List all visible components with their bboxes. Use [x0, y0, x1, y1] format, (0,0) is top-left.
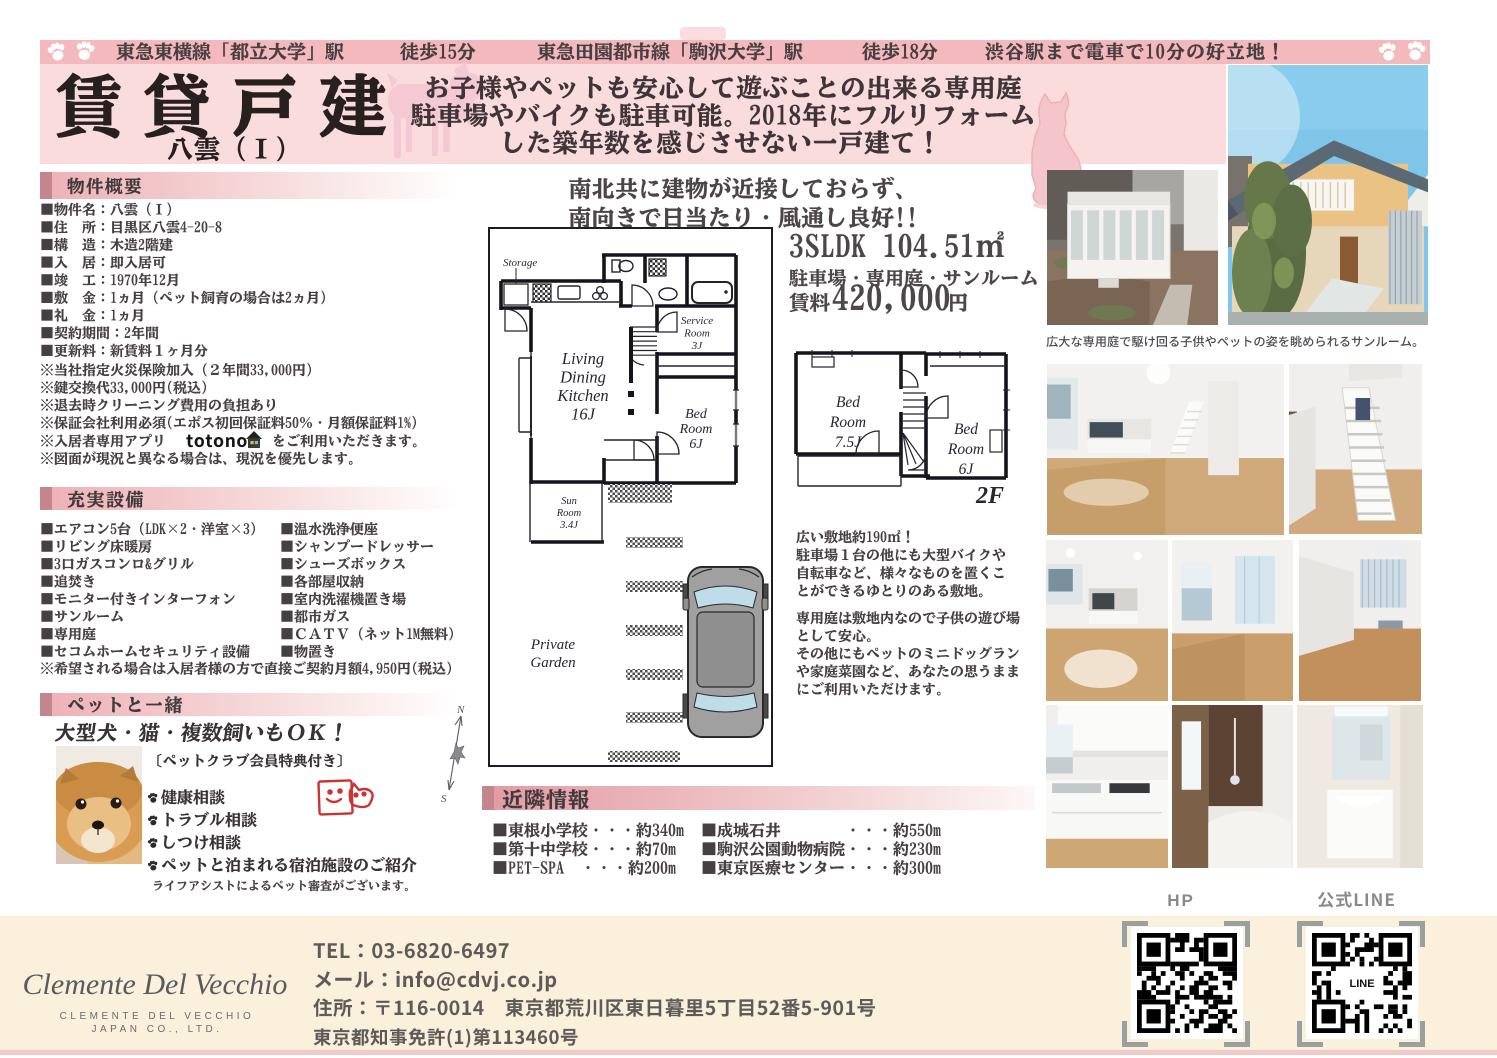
svg-text:CLEMENTE DEL VECCHIO: CLEMENTE DEL VECCHIO [60, 1011, 255, 1022]
svg-text:Clemente Del Vecchio: Clemente Del Vecchio [23, 968, 288, 1001]
svg-text:Storage: Storage [503, 257, 537, 269]
svg-text:S: S [441, 793, 447, 805]
svg-text:N: N [456, 704, 465, 716]
svg-text:BedRoom6J: BedRoom6J [947, 421, 984, 478]
svg-text:LivingDiningKitchen16J: LivingDiningKitchen16J [556, 349, 608, 424]
svg-text:PrivateGarden: PrivateGarden [530, 637, 576, 671]
svg-text:JAPAN CO., LTD.: JAPAN CO., LTD. [91, 1024, 222, 1035]
svg-text:BedRoom6J: BedRoom6J [679, 407, 713, 452]
svg-text:LINE: LINE [1349, 978, 1374, 990]
svg-text:SunRoom3.4J: SunRoom3.4J [556, 496, 582, 531]
svg-text:BedRoom7.5J: BedRoom7.5J [829, 394, 866, 451]
svg-text:HP: HP [1167, 891, 1195, 910]
svg-text:2F: 2F [975, 483, 1004, 509]
svg-text:ServiceRoom3J: ServiceRoom3J [681, 315, 713, 352]
